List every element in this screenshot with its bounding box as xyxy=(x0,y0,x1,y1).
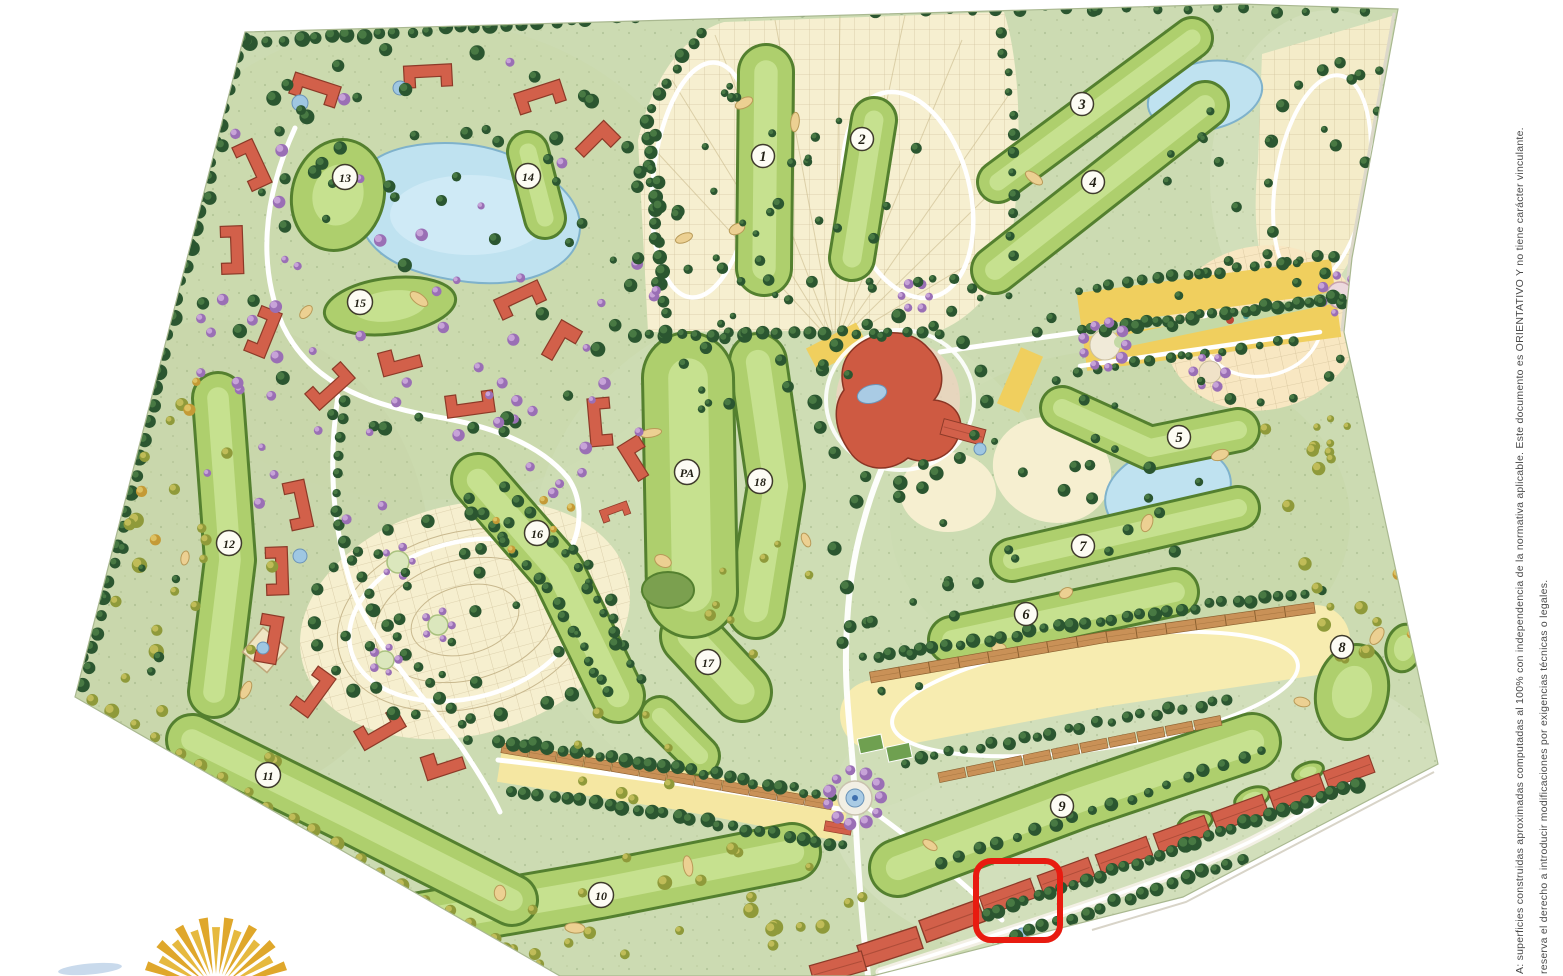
master-plan-page: 123456789101112131415161718PA A: superfi… xyxy=(0,0,1563,976)
svg-text:3: 3 xyxy=(1077,97,1085,113)
svg-text:5: 5 xyxy=(1175,430,1182,446)
svg-text:17: 17 xyxy=(702,656,715,670)
svg-text:11: 11 xyxy=(262,769,273,783)
sun-logo xyxy=(137,912,295,976)
hole-marker-8: 8 xyxy=(1331,636,1354,659)
blue-swoosh-logo xyxy=(52,958,132,976)
svg-text:PA: PA xyxy=(680,466,694,480)
hole-marker-3: 3 xyxy=(1071,93,1094,116)
svg-text:9: 9 xyxy=(1058,799,1065,815)
svg-text:18: 18 xyxy=(754,475,766,489)
hole-marker-16: 16 xyxy=(525,521,550,546)
hole-marker-12: 12 xyxy=(217,531,242,556)
svg-text:6: 6 xyxy=(1022,607,1030,623)
svg-text:15: 15 xyxy=(354,296,366,310)
svg-text:12: 12 xyxy=(223,537,235,551)
svg-text:8: 8 xyxy=(1338,640,1346,656)
hole-marker-6: 6 xyxy=(1015,603,1038,626)
terrain xyxy=(0,0,1563,976)
hole-marker-14: 14 xyxy=(516,164,541,189)
svg-text:16: 16 xyxy=(531,527,543,541)
hole-marker-1: 1 xyxy=(752,145,775,168)
disclaimer-line-2: reserva el derecho a introducir modifica… xyxy=(1538,580,1550,974)
svg-text:2: 2 xyxy=(857,132,865,148)
hole-marker-PA: PA xyxy=(675,460,700,485)
hole-marker-13: 13 xyxy=(333,165,358,190)
svg-text:4: 4 xyxy=(1088,175,1096,191)
svg-text:7: 7 xyxy=(1079,539,1087,555)
hole-marker-15: 15 xyxy=(348,290,373,315)
svg-text:1: 1 xyxy=(759,149,766,165)
hole-marker-5: 5 xyxy=(1168,426,1191,449)
disclaimer-line-1: A: superficies construidas aproximadas c… xyxy=(1514,127,1526,974)
hole-marker-2: 2 xyxy=(851,128,874,151)
hole-marker-7: 7 xyxy=(1072,535,1095,558)
hole-marker-11: 11 xyxy=(256,763,281,788)
hole-marker-17: 17 xyxy=(696,650,721,675)
hole-marker-10: 10 xyxy=(589,883,614,908)
resort-map: 123456789101112131415161718PA xyxy=(0,0,1563,976)
hole-marker-18: 18 xyxy=(748,469,773,494)
hole-marker-4: 4 xyxy=(1082,171,1105,194)
svg-text:13: 13 xyxy=(339,171,351,185)
hole-marker-9: 9 xyxy=(1051,795,1074,818)
svg-text:14: 14 xyxy=(522,170,534,184)
svg-text:10: 10 xyxy=(595,889,607,903)
